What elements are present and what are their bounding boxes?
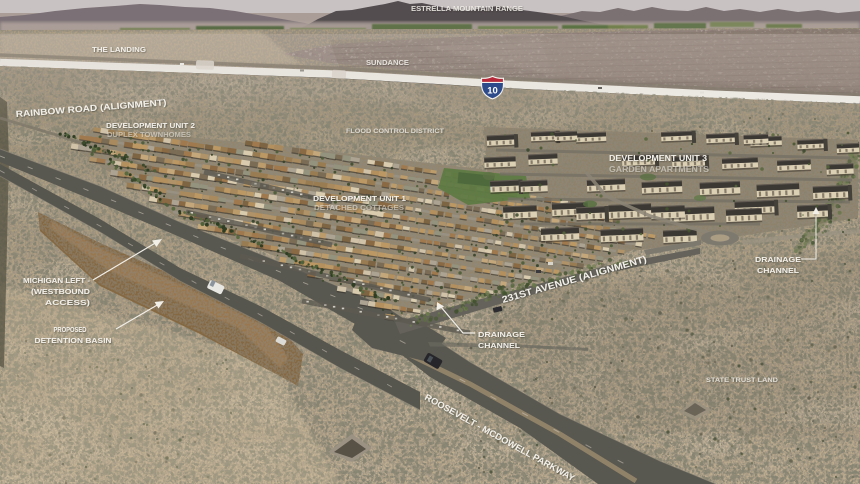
svg-text:DEVELOPMENT UNIT 3: DEVELOPMENT UNIT 3 (609, 154, 708, 163)
svg-text:DRAINAGE: DRAINAGE (755, 255, 801, 264)
svg-text:CHANNEL: CHANNEL (478, 341, 521, 350)
svg-text:(WESTBOUND: (WESTBOUND (31, 287, 90, 296)
svg-text:SUNDANCE: SUNDANCE (366, 58, 409, 67)
svg-text:10: 10 (487, 86, 498, 97)
svg-text:ESTRELLA MOUNTAIN RANGE: ESTRELLA MOUNTAIN RANGE (411, 6, 523, 13)
svg-text:DRAINAGE: DRAINAGE (478, 330, 525, 339)
svg-text:STATE TRUST LAND: STATE TRUST LAND (706, 377, 778, 384)
svg-text:DETENTION BASIN: DETENTION BASIN (35, 336, 112, 345)
svg-text:THE LANDING: THE LANDING (92, 47, 147, 54)
svg-text:ACCESS): ACCESS) (45, 298, 91, 307)
svg-text:DUPLEX TOWNHOMES: DUPLEX TOWNHOMES (107, 130, 191, 139)
svg-text:MICHIGAN LEFT -: MICHIGAN LEFT - (23, 276, 91, 285)
svg-text:DEVELOPMENT UNIT 1: DEVELOPMENT UNIT 1 (313, 194, 407, 203)
svg-text:PROPOSED: PROPOSED (54, 325, 87, 334)
svg-text:CHANNEL: CHANNEL (757, 266, 800, 275)
svg-text:GARDEN APARTMENTS: GARDEN APARTMENTS (609, 165, 710, 174)
svg-text:DETACHED COTTAGES: DETACHED COTTAGES (314, 203, 404, 212)
svg-text:DEVELOPMENT UNIT 2: DEVELOPMENT UNIT 2 (106, 121, 195, 130)
svg-text:FLOOD CONTROL DISTRICT: FLOOD CONTROL DISTRICT (346, 128, 444, 135)
